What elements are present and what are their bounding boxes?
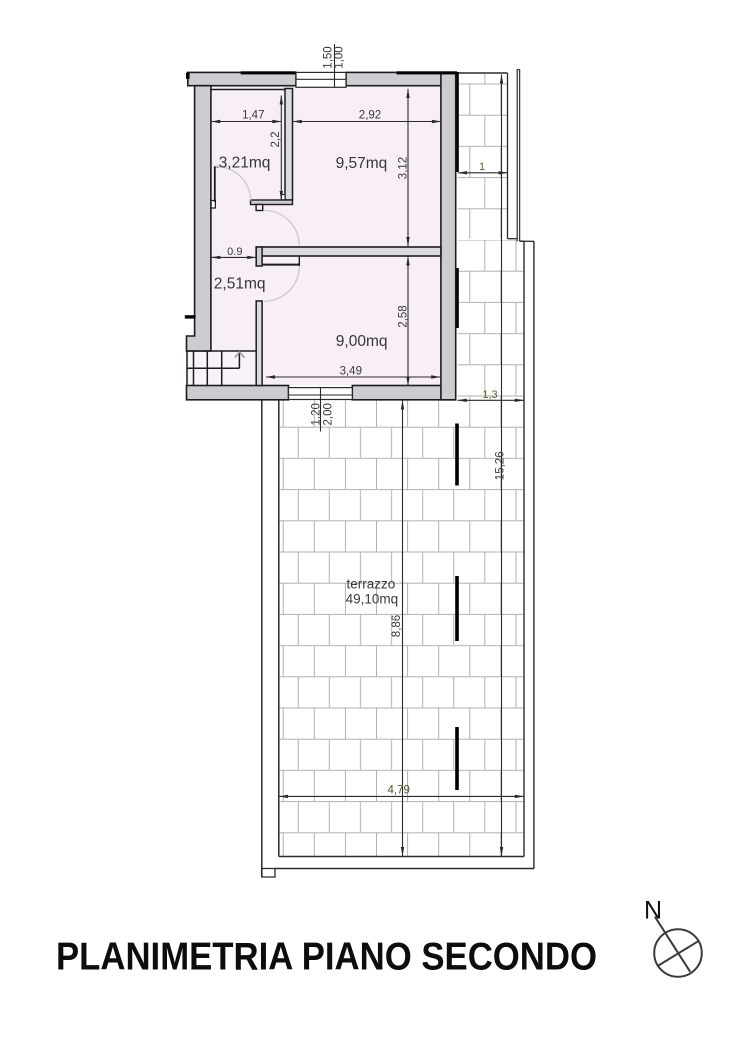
svg-text:49,10mq: 49,10mq [346,592,399,607]
svg-text:1,47: 1,47 [242,110,264,122]
svg-text:1,20: 1,20 [311,403,323,425]
svg-text:9,00mq: 9,00mq [336,333,388,350]
svg-text:2,2: 2,2 [270,132,282,148]
svg-text:1,00: 1,00 [334,46,346,68]
svg-text:2,58: 2,58 [398,305,410,327]
svg-text:N: N [644,897,662,925]
svg-text:8,86: 8,86 [391,615,403,637]
svg-text:1: 1 [479,161,485,173]
svg-text:4,79: 4,79 [388,785,410,797]
svg-text:1,3: 1,3 [482,389,497,401]
svg-text:2,92: 2,92 [359,110,381,122]
svg-text:0.9: 0.9 [227,246,242,258]
svg-text:15,26: 15,26 [495,451,507,480]
svg-text:PLANIMETRIA PIANO SECONDO: PLANIMETRIA PIANO SECONDO [56,936,597,979]
svg-text:terrazzo: terrazzo [347,577,396,592]
svg-text:2,51mq: 2,51mq [214,276,266,293]
svg-text:3,12: 3,12 [398,157,410,179]
svg-text:9,57mq: 9,57mq [336,155,388,172]
svg-text:3,21mq: 3,21mq [219,154,271,171]
svg-text:2,00: 2,00 [323,403,335,425]
svg-text:3,49: 3,49 [340,365,362,377]
